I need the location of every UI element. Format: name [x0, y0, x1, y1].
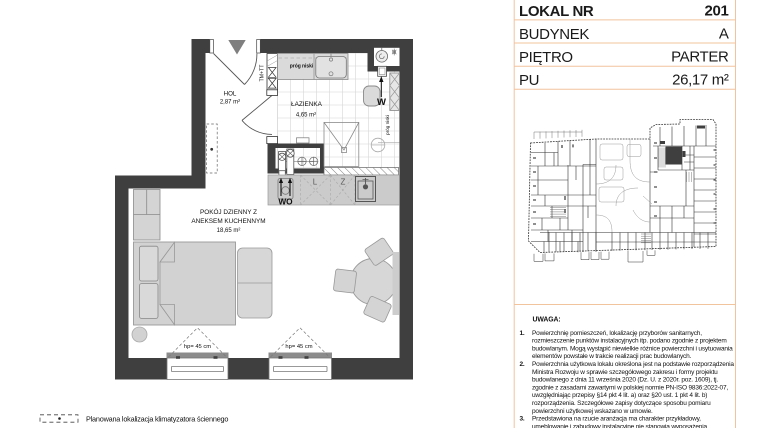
svg-text:W: W [377, 97, 386, 108]
svg-text:201: 201 [705, 3, 729, 20]
svg-text:hp= 45 cm: hp= 45 cm [285, 344, 312, 350]
svg-text:hp= 45 cm: hp= 45 cm [184, 344, 211, 350]
svg-text:rozporządzenia. Szczegółowe za: rozporządzenia. Szczegółowe zapisy dotyc… [532, 400, 711, 407]
svg-text:2.: 2. [520, 361, 525, 368]
svg-text:L: L [313, 178, 318, 187]
svg-text:elementów powstałe w trakcie r: elementów powstałe w trakcie realizacji … [532, 353, 692, 360]
svg-text:Powierzchnię pomieszczeń, loka: Powierzchnię pomieszczeń, lokalizację pr… [532, 330, 702, 337]
svg-text:zgodnie z zasadami zawartymi w: zgodnie z zasadami zawartymi w polskiej … [532, 384, 728, 391]
svg-text:WO: WO [278, 197, 293, 207]
svg-text:Przedstawiona na rzucie aranża: Przedstawiona na rzucie aranżacja ma cha… [532, 416, 701, 423]
svg-text:LOKAL NR: LOKAL NR [519, 3, 594, 20]
svg-text:Ministra Rozwoju w sprawie szc: Ministra Rozwoju w sprawie szczegółowego… [532, 369, 718, 376]
svg-text:POKÓJ DZIENNY Z: POKÓJ DZIENNY Z [200, 207, 257, 216]
svg-text:Powierzchnia użytkowa lokalu o: Powierzchnia użytkowa lokalu określona j… [532, 361, 734, 368]
svg-text:18,65 m²: 18,65 m² [217, 228, 241, 234]
svg-text:Z: Z [341, 178, 346, 187]
svg-text:PU: PU [519, 72, 539, 89]
svg-text:PARTER: PARTER [671, 49, 729, 66]
svg-text:TM+TT: TM+TT [260, 64, 266, 82]
svg-text:powierzchni użytkowej wskazano: powierzchni użytkowej wskazano w umowie. [532, 408, 653, 415]
svg-text:BUDYNEK: BUDYNEK [519, 26, 589, 43]
svg-text:2,87 m²: 2,87 m² [220, 100, 240, 106]
svg-text:HOL: HOL [224, 91, 237, 98]
svg-text:umeblowanie i zabudowy instala: umeblowanie i zabudowy instalacyjne nie … [532, 423, 707, 428]
svg-text:3.: 3. [520, 416, 525, 423]
svg-text:1.: 1. [520, 330, 525, 337]
svg-text:uwzględniając przepisy §14 pkt: uwzględniając przepisy §14 pkt 4 lit. a)… [532, 392, 707, 399]
svg-text:4,65 m²: 4,65 m² [296, 113, 316, 119]
svg-text:ANEKSEM KUCHENNYM: ANEKSEM KUCHENNYM [191, 218, 265, 225]
svg-text:ŁAZIENKA: ŁAZIENKA [291, 101, 323, 108]
svg-text:PIĘTRO: PIĘTRO [519, 49, 573, 66]
svg-text:budowlanego z dnia 11 września: budowlanego z dnia 11 września 2020 (Dz.… [532, 377, 718, 384]
svg-text:A: A [719, 26, 729, 43]
svg-text:rozmieszczenie punktów instala: rozmieszczenie punktów instalacyjnych it… [532, 338, 727, 345]
svg-text:26,17 m²: 26,17 m² [672, 72, 729, 89]
svg-text:budowlanym. Mogą wystąpić niew: budowlanym. Mogą wystąpić niewielkie róż… [532, 345, 733, 352]
svg-text:Planowana lokalizacja klimatyz: Planowana lokalizacja klimatyzatora ście… [86, 414, 228, 423]
svg-text:próg niski: próg niski [385, 115, 390, 135]
svg-text:próg niski: próg niski [290, 64, 314, 70]
svg-text:UWAGA:: UWAGA: [533, 317, 561, 324]
